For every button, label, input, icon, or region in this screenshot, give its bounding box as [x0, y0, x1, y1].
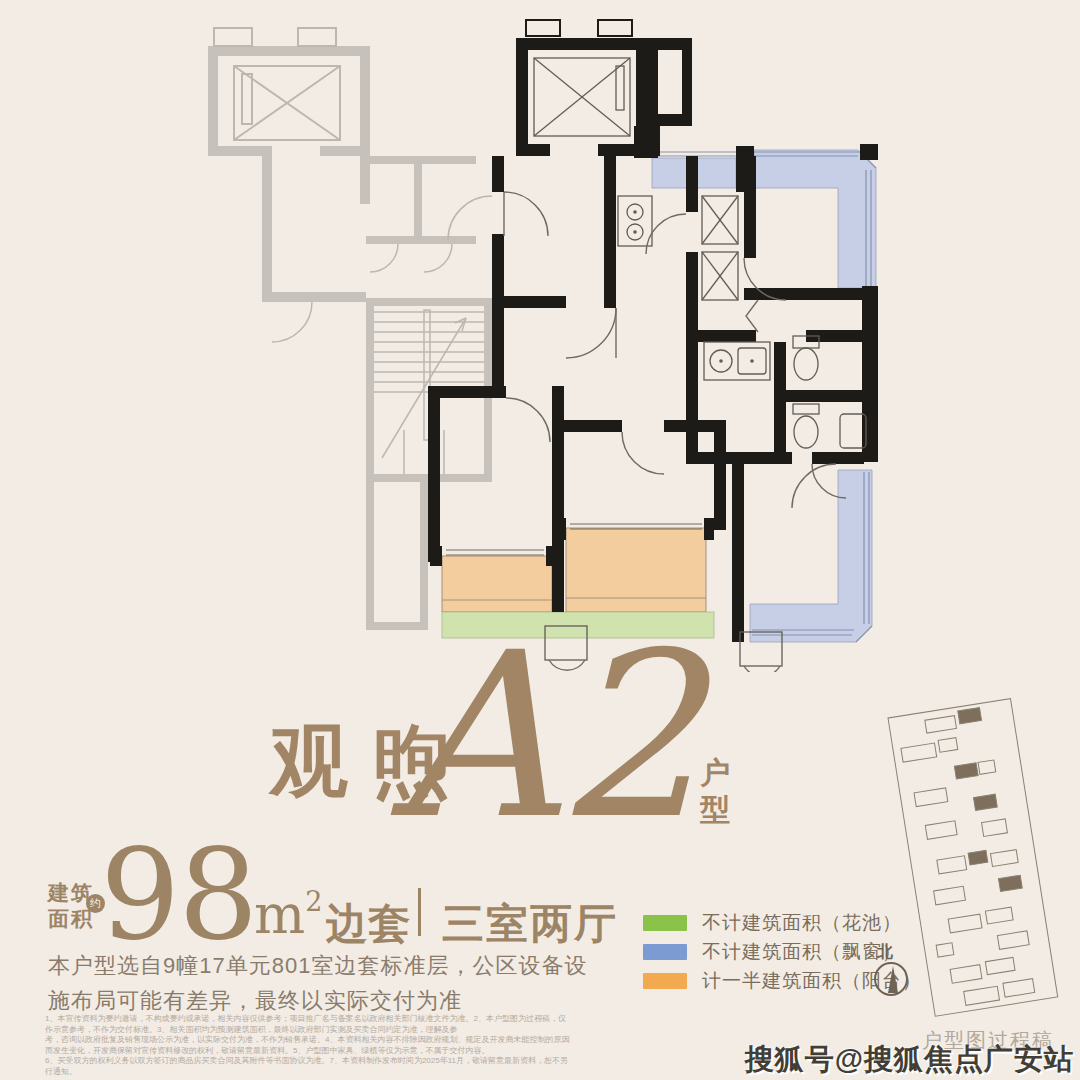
- area-value: 98: [100, 832, 256, 958]
- common-area-gray: [208, 28, 492, 630]
- floor-plan: [0, 0, 1080, 672]
- layout-label: 三室两厅: [442, 896, 618, 952]
- elevator-ticks: [526, 20, 632, 36]
- area-unit: m2: [254, 888, 322, 942]
- bay-window-swatch: [643, 944, 687, 960]
- unit-suffix: 户型: [700, 754, 734, 828]
- unit-description: 本户型选自9幢17单元801室边套标准层，公区设备设 施布局可能有差异，最终以实…: [48, 948, 587, 1018]
- unit-code: A2: [392, 622, 702, 850]
- divider-bar: [418, 888, 421, 936]
- site-plan: [868, 676, 1078, 1036]
- sohu-watermark: 搜狐号@搜狐焦点广安站: [745, 1040, 1074, 1080]
- flower-bed-swatch: [643, 915, 687, 931]
- balcony-zones: [442, 528, 706, 612]
- position-tag: 边套: [326, 896, 410, 952]
- balcony-swatch: [643, 973, 687, 989]
- disclaimer-footnotes: 1、本宣传资料为要约邀请，不构成要约或承诺，相关内容仅供参考；项目推广名与备案名…: [45, 1014, 570, 1077]
